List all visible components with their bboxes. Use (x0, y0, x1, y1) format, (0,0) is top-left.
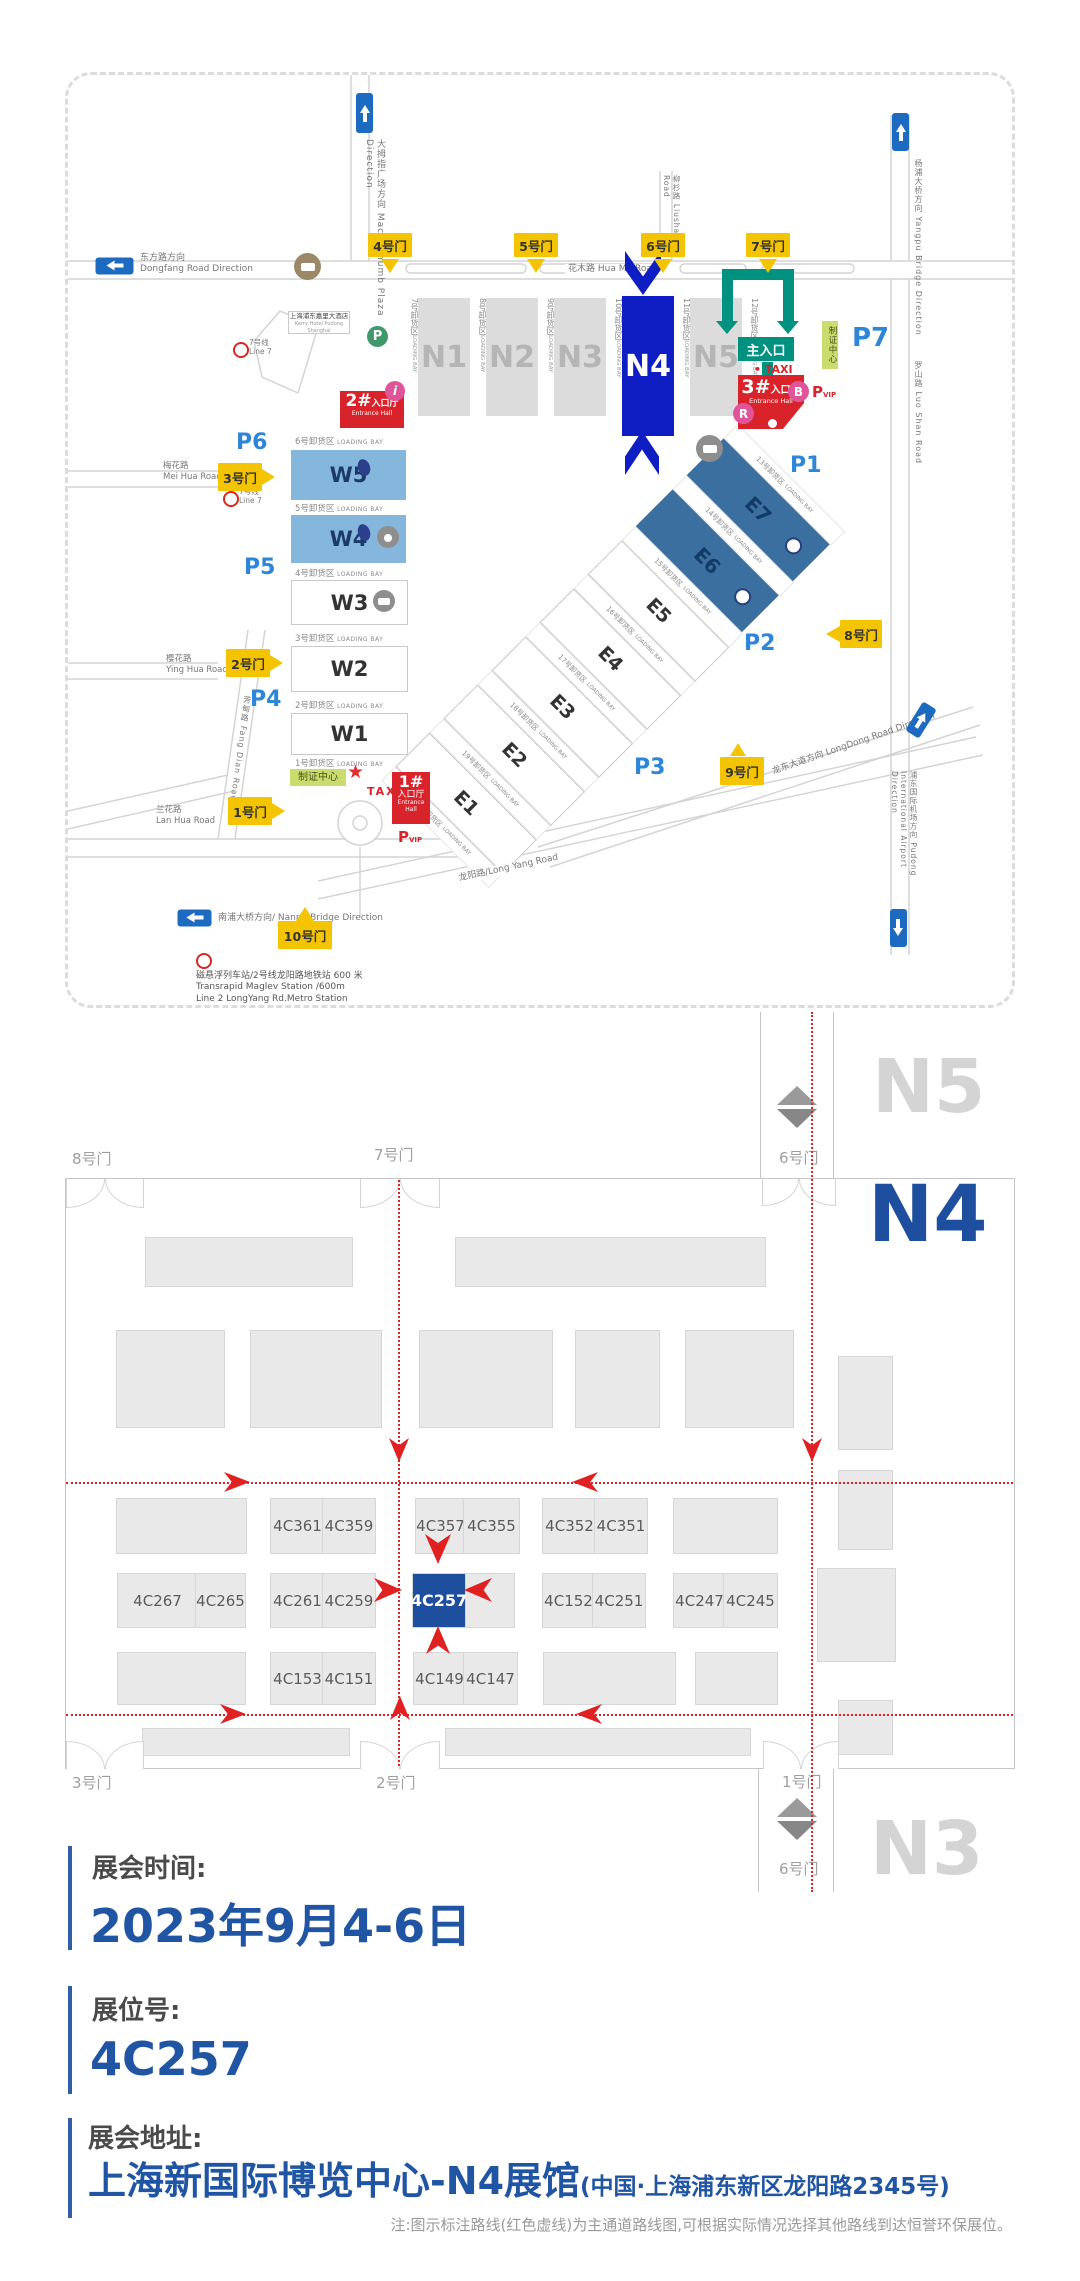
bus-stop-icon: B (788, 381, 809, 402)
bay-label-en: LOADING BAY (479, 335, 485, 372)
route-line-horizontal-lower (66, 1714, 1013, 1716)
venue-map-card: 大拇指广场方向 Macro-thumb Plaza Direction 东方路方… (65, 72, 1015, 1008)
door-leaf (801, 1741, 839, 1769)
road-label-zh: 东方路方向 (140, 253, 253, 264)
arrow-stem (363, 113, 367, 122)
entrance-arrow-icon (716, 321, 738, 334)
booth-number-value: 4C257 (90, 2032, 252, 2086)
gate-4-arrow-icon (381, 259, 399, 273)
road-label-yangpu: 杨浦大桥方向 Yangpu Bridge Direction (913, 159, 924, 339)
star-icon: ★ (347, 761, 364, 783)
bay-label: 5号卸货区 (295, 504, 334, 514)
up-arrow-sign (892, 113, 909, 151)
taxi-icon (294, 253, 321, 280)
gate-7-door-icon (360, 1179, 440, 1208)
parking-P2: P2 (744, 631, 775, 656)
parking-P4: P4 (250, 687, 281, 712)
line7-en: Line 7 (239, 496, 262, 505)
hall-N3: N3 (554, 298, 606, 416)
hotel-name-zh: 上海浦东嘉里大酒店 (289, 312, 349, 321)
booth-block (838, 1356, 893, 1450)
booth-4C152: 4C152 (542, 1573, 595, 1628)
hall-N4-highlighted: N4 (622, 296, 674, 436)
booth-block (116, 1330, 225, 1428)
gate-1-arrow-icon (272, 803, 285, 819)
booth-block (817, 1568, 896, 1662)
booth-4C251: 4C251 (592, 1573, 646, 1628)
booth-4C359: 4C359 (322, 1498, 376, 1554)
parking-icon: P (367, 326, 388, 347)
gate-7-label: 7号门 (374, 1144, 414, 1165)
line7-zh: 7号线 (249, 338, 272, 347)
road-label-en: Ying Hua Road (166, 665, 228, 676)
door-leaf (105, 1741, 144, 1769)
hall-wall-right (1014, 1178, 1015, 1768)
metro-note-line3: Line 2 LongYang Rd.Metro Station (196, 994, 363, 1005)
parking-P3: P3 (634, 755, 665, 780)
metro-icon (196, 953, 212, 969)
loading-bay-6: 6号卸货区 LOADING BAY (291, 435, 410, 448)
bay-label: 6号卸货区 (295, 437, 334, 447)
info-icon: i (385, 381, 405, 401)
arrow-icon (106, 261, 114, 271)
up-arrow-sign (356, 93, 373, 133)
booth-4C147: 4C147 (463, 1652, 518, 1705)
loading-bay-11: 11号卸货区LOADING BAY (674, 298, 690, 416)
route-arrow-up-icon (426, 1626, 450, 1654)
bus-icon (373, 590, 395, 612)
bay-label-en: LOADING BAY (615, 340, 621, 377)
bay-label: 4号卸货区 (295, 569, 334, 579)
bay-label: 12号卸货区 (750, 298, 759, 340)
metro-line7-label: 7号线Line 7 (249, 338, 272, 357)
parking-P5: P5 (244, 555, 275, 580)
metro-note-line1: 磁悬浮列车站/2号线龙阳路地铁站 600 米 (196, 971, 363, 982)
booth-4C247: 4C247 (673, 1573, 726, 1628)
entrance-hall-1-num: 1# (392, 772, 430, 791)
address-paren: (中国·上海浦东新区龙阳路2345号) (580, 2174, 950, 2200)
taxi-label: • TAXI (754, 363, 793, 376)
gate-9-arrow-icon (730, 743, 746, 756)
exhibition-time-label: 展会时间: (92, 1848, 206, 1885)
gate-10-arrow-icon (296, 907, 314, 921)
booth-4C352: 4C352 (542, 1498, 597, 1554)
badge-center-label: 制证中心 (290, 769, 346, 786)
line7-en: Line 7 (249, 347, 272, 356)
left-arrow-sign (178, 910, 212, 927)
road-label-airport: 浦东国际机场方向 Pudong International Airport Di… (890, 771, 919, 906)
bus-icon (696, 435, 723, 462)
hall-N1: N1 (418, 298, 470, 416)
loading-bay-10: 10号卸货区LOADING BAY (606, 298, 622, 416)
hall-W1: W1 (291, 713, 408, 755)
loading-bay-2: 2号卸货区 LOADING BAY (291, 699, 410, 712)
booth-block (250, 1330, 382, 1428)
door-leaf (763, 1741, 801, 1769)
gate-3-label: 3号门 (72, 1772, 112, 1793)
bay-label-en: LOADING BAY (683, 340, 689, 377)
hall-en: Entrance Hall (392, 800, 430, 813)
gate-8-door-icon (66, 1179, 144, 1208)
booth-4C151: 4C151 (322, 1652, 376, 1705)
gate-5: 5号门 (514, 233, 558, 257)
p: P (398, 828, 409, 846)
vip-parking-label: PVIP (812, 383, 836, 401)
route-line-horizontal-upper (66, 1482, 1013, 1484)
vip-parking-label: PVIP (398, 828, 422, 846)
down-arrow-sign (890, 909, 907, 947)
bay-label-en: LOADING BAY (337, 703, 383, 710)
loading-bay-4: 4号卸货区 LOADING BAY (291, 567, 410, 580)
gate-5-arrow-icon (527, 259, 545, 273)
door-leaf (66, 1741, 105, 1769)
road-label-meihua: 梅花路Mei Hua Road (163, 461, 222, 482)
road-label-yinghua: 樱花路Ying Hua Road (166, 654, 228, 675)
loading-bay-8: 8号卸货区LOADING BAY (470, 298, 486, 416)
gate-4: 4号门 (368, 233, 412, 257)
hall-label: E7 (740, 492, 776, 528)
gate-2-arrow-icon (270, 655, 283, 671)
booth-block (695, 1652, 778, 1705)
gate-6: 6号门 (641, 233, 685, 257)
route-note: 注:图示标注路线(红色虚线)为主通道路线图,可根据实际情况选择其他路线到达恒誉环… (300, 2214, 1012, 2235)
bay-label-en: LOADING BAY (411, 335, 417, 372)
booth-4C245: 4C245 (723, 1573, 778, 1628)
loading-bay-3: 3号卸货区 LOADING BAY (291, 632, 410, 645)
booth-block (445, 1728, 751, 1756)
exhibition-time-value: 2023年9月4-6日 (90, 1890, 471, 1956)
door-leaf (105, 1179, 144, 1208)
gate-9: 9号门 (720, 757, 764, 785)
hall-wall-bottom (65, 1768, 1015, 1769)
road-label-luoshan: 罗山路 Luo Shan Road (913, 361, 924, 481)
road-label-zh: 梅花路 (163, 461, 222, 472)
booth-block (543, 1652, 676, 1705)
door-leaf (400, 1179, 440, 1208)
gate-3-door-icon (66, 1741, 144, 1769)
accent-bar (68, 2118, 72, 2218)
booth-4C149: 4C149 (413, 1652, 466, 1705)
parking-P1: P1 (790, 453, 821, 478)
door-leaf (66, 1179, 105, 1208)
booth-block (455, 1237, 766, 1287)
dot-icon (768, 419, 777, 428)
bay-label: 3号卸货区 (295, 634, 334, 644)
bay-label: 2号卸货区 (295, 701, 334, 711)
booth-4C355: 4C355 (463, 1498, 520, 1554)
gate-6-door-icon (762, 1179, 836, 1206)
booth-block (673, 1498, 778, 1554)
gate-1-door-icon (763, 1741, 839, 1769)
booth-4C257-highlighted: 4C257 (412, 1573, 466, 1628)
person-head (384, 534, 392, 542)
booth-block (117, 1652, 246, 1705)
door-leaf (400, 1741, 440, 1769)
parking-P7: P7 (852, 323, 889, 353)
metro-icon (223, 491, 239, 507)
hall-N4-label: N4 (868, 1176, 988, 1254)
loading-bay-9: 9号卸货区LOADING BAY (538, 298, 554, 416)
hall-W5: W5 (291, 450, 406, 500)
gate-2: 2号门 (226, 649, 270, 677)
entrance-arrow-icon (777, 321, 799, 334)
gate-3-arrow-icon (262, 469, 275, 485)
door-leaf (360, 1179, 400, 1208)
gate-7-arrow-icon (759, 259, 777, 273)
hall-N2: N2 (486, 298, 538, 416)
booth-4C361: 4C361 (270, 1498, 325, 1554)
arrow-stem (194, 916, 203, 920)
metro-note: 磁悬浮列车站/2号线龙阳路地铁站 600 米 Transrapid Maglev… (196, 971, 363, 1005)
accent-bar (68, 1986, 72, 2094)
hall-W2: W2 (291, 646, 408, 692)
corridor-wall (833, 1768, 834, 1892)
main-entrance-label: 主入口 (738, 337, 794, 361)
hall-N3-label: N3 (870, 1812, 983, 1886)
road-label-en: Dongfang Road Direction (140, 264, 253, 275)
gate-1: 1号门 (228, 797, 272, 825)
entrance-route-bar (722, 269, 733, 321)
door-leaf (360, 1741, 400, 1769)
booth-block (419, 1330, 553, 1428)
loading-bay-5: 5号卸货区 LOADING BAY (291, 502, 410, 515)
route-line-vertical-gate7 (398, 1180, 400, 1766)
road-label-dongfang: 东方路方向Dongfang Road Direction (140, 253, 253, 276)
door-leaf (762, 1179, 799, 1206)
corridor-wall (833, 1012, 834, 1178)
num: 3# (741, 376, 770, 398)
hall-N5: N5 (690, 298, 742, 416)
gate-1-label: 1号门 (782, 1771, 822, 1792)
bus-glyph (703, 445, 717, 453)
booth-4C261: 4C261 (270, 1573, 325, 1628)
hotel-name-en: Kerry Hotel Pudong Shanghai (289, 321, 349, 335)
gate-2-door-icon (360, 1741, 440, 1769)
gate-8-label: 8号门 (72, 1148, 112, 1169)
road-label-zh: 兰花路 (156, 805, 215, 816)
booth-block (116, 1498, 247, 1554)
booth-block (685, 1330, 794, 1428)
corridor-wall (760, 1012, 761, 1178)
road-label-zh: 樱花路 (166, 654, 228, 665)
booth-block (145, 1237, 353, 1287)
gate-10: 10号门 (278, 921, 332, 949)
loading-bay-7: 7号卸货区LOADING BAY (402, 298, 418, 416)
road-label-en: Lan Hua Road (156, 816, 215, 827)
bay-label-en: LOADING BAY (337, 506, 383, 513)
booth-block (142, 1728, 350, 1756)
expo-badge-icon (731, 585, 755, 609)
entrance-route-bar (783, 269, 794, 321)
arrow-stem (915, 719, 923, 729)
car-glyph (301, 263, 315, 271)
left-arrow-sign (96, 258, 134, 275)
road-label-en: Mei Hua Road (163, 472, 222, 483)
parking-P6: P6 (236, 430, 267, 455)
route-arrow-up-icon (390, 1696, 410, 1720)
gate-3: 3号门 (218, 463, 262, 491)
booth-4C351: 4C351 (594, 1498, 648, 1554)
hall-label: E6 (689, 542, 725, 578)
bay-label-en: LOADING BAY (337, 571, 383, 578)
hall-en: Entrance Hall (340, 411, 404, 417)
hotel-label: 上海浦东嘉里大酒店Kerry Hotel Pudong Shanghai (288, 311, 350, 334)
address-main: 上海新国际博览中心-N4展馆 (88, 2159, 580, 2203)
bay-label-en: LOADING BAY (337, 636, 383, 643)
arrow-stem (114, 264, 123, 268)
rail-stop-icon: R (733, 403, 754, 424)
address-value: 上海新国际博览中心-N4展馆(中国·上海浦东新区龙阳路2345号) (88, 2150, 950, 2205)
bay-label-en: LOADING BAY (337, 439, 383, 446)
arrow-stem (897, 920, 901, 929)
booth-4C153: 4C153 (270, 1652, 325, 1705)
gate-8-arrow-icon (826, 626, 840, 642)
hall-N5-label: N5 (872, 1050, 985, 1124)
gate-8: 8号门 (840, 620, 882, 648)
gate-6-arrow-icon (654, 259, 672, 273)
gate-7: 7号门 (746, 233, 790, 257)
gate-2-label: 2号门 (376, 1772, 416, 1793)
arrow-stem (899, 132, 903, 141)
metro-note-line2: Transrapid Maglev Station /600m (196, 982, 363, 993)
accent-bar (68, 1846, 72, 1950)
bus-glyph (378, 598, 390, 605)
road-label-lanhua: 兰花路Lan Hua Road (156, 805, 215, 826)
expo-badge-icon (782, 534, 806, 558)
badge-center-label: 制证中心 (822, 321, 838, 369)
num: 2# (345, 391, 371, 411)
bay-label-en: LOADING BAY (547, 335, 553, 372)
corridor-wall (758, 1768, 759, 1892)
booth-4C265: 4C265 (195, 1573, 246, 1628)
num: 1# (399, 772, 424, 791)
arrow-icon (896, 124, 906, 132)
hall-wall-left (65, 1178, 66, 1768)
vip: VIP (409, 836, 422, 844)
booth-number-label: 展位号: (92, 1990, 180, 2027)
arrow-icon (360, 105, 370, 113)
arrow-icon (894, 929, 904, 937)
entrance-hall-1: 1# 入口厅 Entrance Hall (392, 772, 430, 824)
p: P (812, 383, 823, 401)
door-leaf (799, 1179, 836, 1206)
booth-block (838, 1700, 893, 1755)
booth-4C259: 4C259 (322, 1573, 376, 1628)
booth-4C267: 4C267 (117, 1573, 198, 1628)
bay-label: 1号卸货区 (295, 759, 334, 769)
arrow-icon (186, 913, 194, 923)
registration-person-icon (377, 526, 399, 548)
metro-icon (233, 342, 249, 358)
vip: VIP (823, 391, 836, 399)
booth-block (575, 1330, 660, 1428)
